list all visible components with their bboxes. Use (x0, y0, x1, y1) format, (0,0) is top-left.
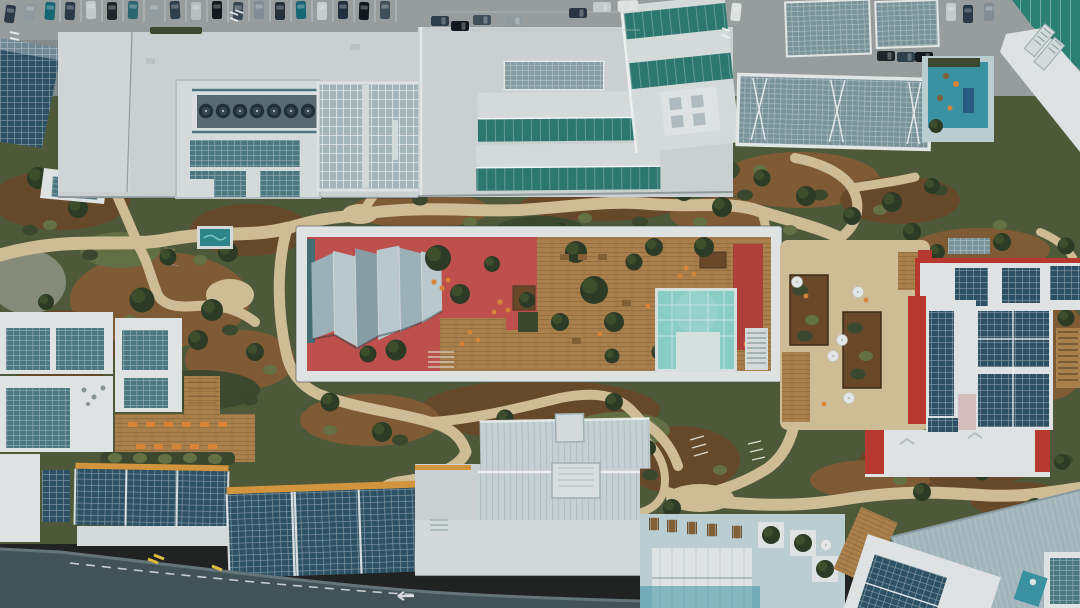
photo-tint (0, 0, 1080, 608)
aerial-scene (0, 0, 1080, 608)
aerial-photo-campus (0, 0, 1080, 608)
